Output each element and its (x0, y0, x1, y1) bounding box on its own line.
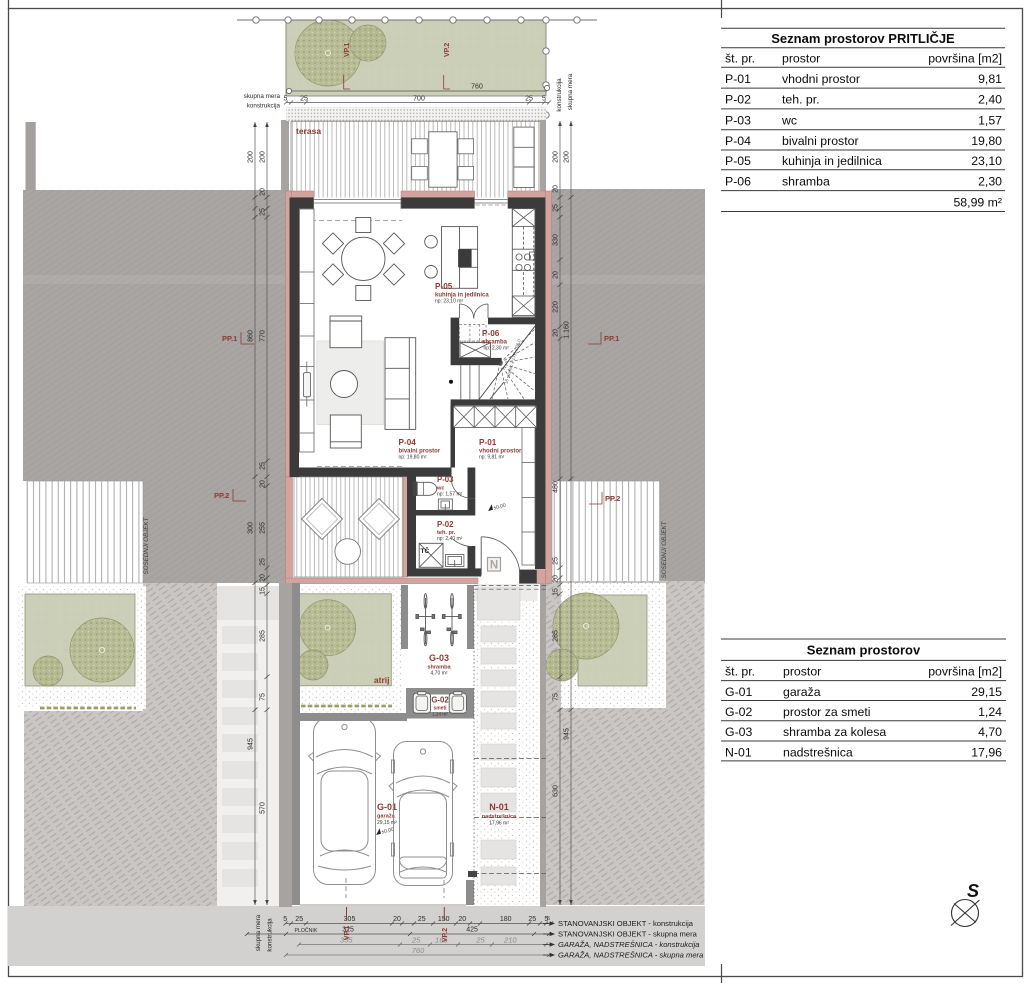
svg-text:75: 75 (553, 693, 560, 701)
svg-text:N-01: N-01 (725, 745, 752, 759)
svg-text:58,99 m²: 58,99 m² (953, 195, 1002, 209)
svg-text:skupna mera: skupna mera (255, 914, 262, 951)
svg-text:PP.2: PP.2 (605, 494, 620, 503)
svg-text:VP.2: VP.2 (444, 43, 451, 57)
svg-text:4,70 m²: 4,70 m² (431, 671, 448, 677)
svg-text:N: N (490, 559, 498, 571)
svg-text:180: 180 (500, 916, 512, 923)
svg-text:G-03: G-03 (725, 725, 752, 739)
svg-text:G-02: G-02 (431, 696, 449, 705)
svg-text:5: 5 (547, 916, 550, 922)
svg-text:np: 2,30 m²: np: 2,30 m² (484, 346, 510, 352)
svg-text:SOSEDNJI OBJEKT: SOSEDNJI OBJEKT (143, 516, 150, 574)
svg-text:15: 15 (553, 588, 560, 596)
svg-text:20: 20 (553, 329, 560, 337)
svg-text:20: 20 (553, 185, 560, 193)
svg-text:20: 20 (553, 271, 560, 279)
svg-text:PP.1: PP.1 (222, 334, 237, 343)
svg-text:STANOVANJSKI OBJEKT - skupna m: STANOVANJSKI OBJEKT - skupna mera (558, 930, 698, 939)
svg-text:945: 945 (248, 738, 255, 750)
svg-text:STANOVANJSKI OBJEKT - konstruk: STANOVANJSKI OBJEKT - konstrukcija (558, 919, 694, 928)
svg-text:1.160: 1.160 (564, 321, 571, 339)
svg-text:konstrukcija: konstrukcija (267, 918, 274, 952)
svg-text:20: 20 (458, 916, 466, 923)
svg-text:1,24 m²: 1,24 m² (432, 712, 448, 717)
svg-text:570: 570 (260, 802, 267, 814)
svg-text:760: 760 (471, 84, 483, 91)
svg-text:G-01: G-01 (725, 685, 752, 699)
svg-text:29,15: 29,15 (971, 685, 1002, 699)
svg-text:25: 25 (553, 557, 560, 565)
svg-text:200: 200 (564, 151, 571, 163)
svg-text:prostor za smeti: prostor za smeti (783, 705, 870, 719)
svg-text:285: 285 (553, 630, 560, 642)
svg-text:1,24: 1,24 (978, 705, 1002, 719)
svg-text:VP.1: VP.1 (344, 43, 351, 57)
svg-text:17,96: 17,96 (971, 745, 1002, 759)
svg-text:np: 2,40 m²: np: 2,40 m² (437, 536, 463, 542)
svg-text:2,30: 2,30 (978, 175, 1002, 189)
svg-text:305: 305 (344, 916, 356, 923)
svg-text:atrij: atrij (374, 675, 390, 685)
svg-text:P-01: P-01 (725, 72, 751, 86)
svg-text:GARAŽA, NADSTREŠNICA - skupna: GARAŽA, NADSTREŠNICA - skupna mera (558, 951, 703, 960)
svg-text:VP.1: VP.1 (344, 926, 351, 940)
svg-text:25: 25 (295, 916, 303, 923)
svg-text:G-01: G-01 (377, 802, 397, 812)
svg-text:15: 15 (260, 587, 267, 595)
svg-text:št. pr.: št. pr. (725, 52, 755, 66)
svg-text:760: 760 (412, 946, 425, 955)
svg-text:TČ: TČ (421, 546, 430, 555)
svg-text:19,80: 19,80 (971, 134, 1002, 148)
svg-text:konstrukcija: konstrukcija (247, 103, 281, 110)
svg-text:25: 25 (528, 916, 536, 923)
svg-text:površina [m2]: površina [m2] (928, 665, 1002, 679)
svg-text:29,15 m²: 29,15 m² (377, 820, 397, 826)
svg-text:Seznam prostorov: Seznam prostorov (807, 643, 921, 658)
svg-text:np: 9,81 m²: np: 9,81 m² (479, 455, 505, 461)
svg-text:700: 700 (413, 96, 425, 103)
svg-text:255: 255 (260, 522, 267, 534)
svg-text:25: 25 (260, 462, 267, 470)
svg-text:25: 25 (300, 96, 308, 103)
svg-text:25: 25 (475, 936, 485, 945)
svg-text:SOSEDNJI OBJEKT: SOSEDNJI OBJEKT (661, 520, 668, 578)
svg-text:P-06: P-06 (482, 329, 500, 338)
svg-text:skupna mera: skupna mera (244, 93, 281, 100)
svg-text:PP.2: PP.2 (214, 491, 229, 500)
svg-text:945: 945 (564, 728, 571, 740)
svg-text:220: 220 (553, 301, 560, 313)
svg-text:N-01: N-01 (489, 802, 509, 812)
svg-text:5: 5 (542, 96, 546, 103)
svg-text:površina [m2]: površina [m2] (928, 52, 1002, 66)
svg-text:konstrukcija: konstrukcija (556, 78, 563, 112)
svg-text:25: 25 (553, 204, 560, 212)
svg-text:200: 200 (248, 151, 255, 163)
svg-text:25: 25 (525, 96, 533, 103)
svg-text:770: 770 (260, 330, 267, 342)
svg-text:št. pr.: št. pr. (725, 665, 755, 679)
svg-text:23,10: 23,10 (971, 154, 1002, 168)
svg-text:20: 20 (553, 575, 560, 583)
svg-text:wc: wc (781, 113, 797, 127)
svg-text:np: 19,80 m²: np: 19,80 m² (399, 455, 427, 461)
svg-text:P-02: P-02 (725, 92, 751, 106)
svg-text:150: 150 (438, 916, 450, 923)
svg-text:teh. pr.: teh. pr. (782, 92, 820, 106)
svg-text:25: 25 (260, 558, 267, 566)
svg-text:17,96 m²: 17,96 m² (489, 821, 509, 827)
svg-text:330: 330 (553, 234, 560, 246)
svg-text:425: 425 (466, 927, 478, 934)
svg-text:shramba: shramba (782, 175, 830, 189)
svg-text:300: 300 (248, 522, 255, 534)
svg-text:210: 210 (503, 936, 517, 945)
svg-text:P-03: P-03 (437, 475, 454, 484)
svg-text:P-04: P-04 (399, 438, 417, 447)
svg-text:4,70: 4,70 (978, 725, 1002, 739)
svg-text:np: 23,10 m²: np: 23,10 m² (435, 299, 463, 305)
svg-text:garaža: garaža (783, 685, 821, 699)
svg-text:VP.2: VP.2 (442, 928, 449, 942)
svg-text:5: 5 (283, 916, 287, 923)
svg-text:kuhinja in jedilnica: kuhinja in jedilnica (782, 154, 882, 168)
svg-text:1,57: 1,57 (978, 113, 1002, 127)
svg-text:prostor: prostor (783, 665, 821, 679)
svg-text:PLOČNIK: PLOČNIK (295, 927, 318, 934)
svg-text:P-05: P-05 (435, 282, 453, 291)
svg-text:prostor: prostor (782, 52, 820, 66)
svg-text:2,40: 2,40 (978, 92, 1002, 106)
svg-text:25: 25 (418, 916, 426, 923)
svg-text:200: 200 (260, 151, 267, 163)
svg-text:200: 200 (553, 151, 560, 163)
svg-text:20: 20 (260, 574, 267, 582)
svg-text:25: 25 (260, 208, 267, 216)
svg-text:nadstrešnica: nadstrešnica (482, 814, 517, 820)
svg-text:75: 75 (260, 693, 267, 701)
svg-text:20: 20 (260, 188, 267, 196)
svg-text:P-02: P-02 (437, 520, 454, 529)
svg-text:25: 25 (411, 936, 421, 945)
svg-text:9,81: 9,81 (978, 72, 1002, 86)
svg-text:285: 285 (260, 630, 267, 642)
svg-text:P-03: P-03 (725, 113, 751, 127)
svg-text:nadstrešnica: nadstrešnica (783, 745, 853, 759)
svg-text:480: 480 (553, 481, 560, 493)
svg-text:G-02: G-02 (725, 705, 752, 719)
svg-text:P-06: P-06 (725, 175, 751, 189)
svg-text:860: 860 (248, 330, 255, 342)
svg-text:garaža: garaža (377, 814, 396, 820)
svg-text:P-04: P-04 (725, 134, 751, 148)
svg-text:skupna mera: skupna mera (567, 73, 574, 110)
svg-text:20: 20 (393, 916, 401, 923)
svg-text:shramba za kolesa: shramba za kolesa (783, 725, 886, 739)
svg-text:P-05: P-05 (725, 154, 751, 168)
svg-text:G-03: G-03 (429, 653, 449, 663)
svg-text:S: S (967, 881, 979, 901)
svg-text:PP.1: PP.1 (604, 334, 619, 343)
svg-text:np: 1,57 m²: np: 1,57 m² (437, 492, 463, 498)
svg-text:terasa: terasa (296, 126, 321, 136)
svg-text:5: 5 (284, 96, 288, 103)
svg-text:20: 20 (260, 480, 267, 488)
svg-text:bivalni prostor: bivalni prostor (782, 134, 859, 148)
svg-text:P-01: P-01 (479, 438, 497, 447)
svg-text:Seznam prostorov PRITLIČJE: Seznam prostorov PRITLIČJE (771, 31, 955, 46)
svg-text:vhodni prostor: vhodni prostor (782, 72, 860, 86)
svg-text:GARAŽA, NADSTREŠNICA - konstru: GARAŽA, NADSTREŠNICA - konstrukcija (558, 940, 700, 949)
svg-text:630: 630 (553, 785, 560, 797)
